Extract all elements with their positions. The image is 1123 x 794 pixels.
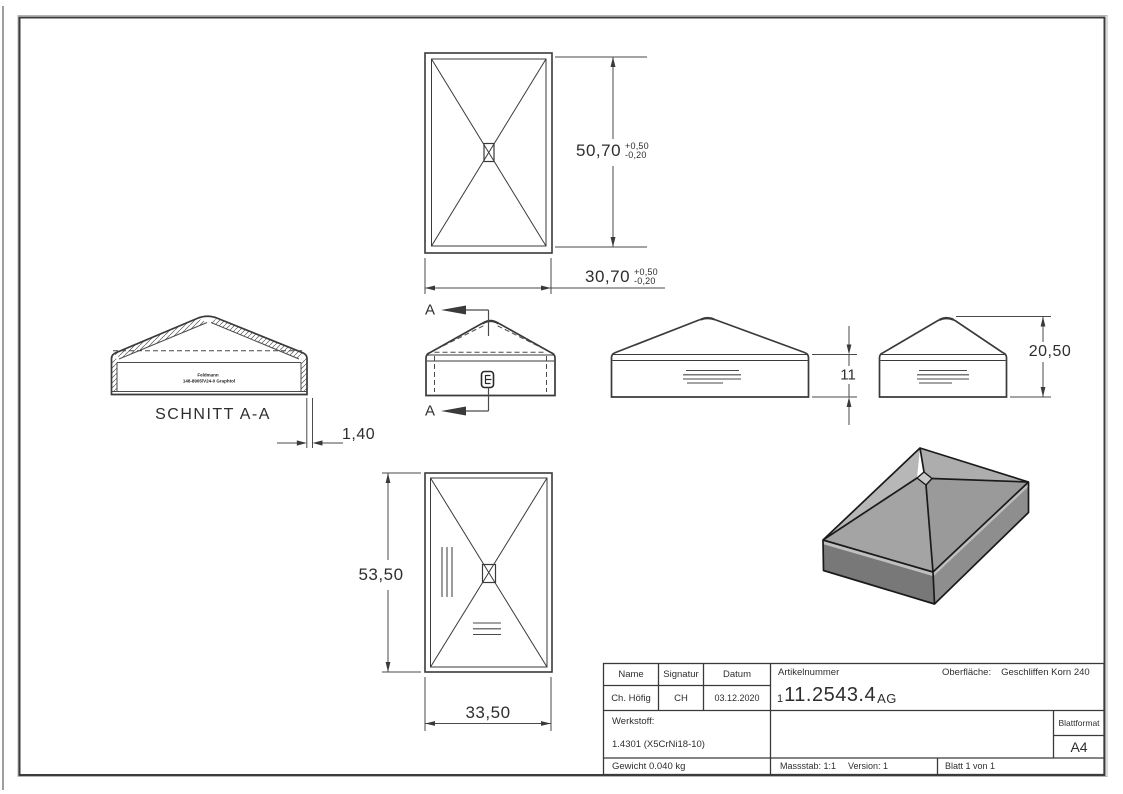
header-datum: Datum (704, 664, 770, 685)
side-view-long (612, 318, 809, 397)
artikelnummer-label: Artikelnummer (778, 667, 839, 678)
value-datum: 03.12.2020 (704, 686, 770, 710)
top-view-dimensions (425, 57, 665, 294)
front-view (426, 321, 555, 396)
section-label: SCHNITT A-A (155, 406, 271, 424)
blattformat-value: A4 (1054, 736, 1104, 757)
header-signatur: Signatur (659, 664, 703, 685)
tolerance-minus: -0,20 (625, 151, 649, 161)
cut-letter-top: A (425, 302, 435, 319)
stamp-text-line2: 148-8905/V24-0 Graphtol (183, 378, 235, 383)
bottom-view (425, 473, 552, 672)
gewicht-value: Gewicht 0.040 kg (612, 761, 685, 772)
dim-value: 30,70 (585, 267, 630, 287)
isometric-view (823, 448, 1029, 604)
tolerance-stack: +0,50 -0,20 (625, 142, 649, 161)
wall-thickness-dimension (277, 398, 343, 448)
dimension-top-height: 50,70 +0,50 -0,20 (574, 141, 651, 161)
blatt-value: Blatt 1 von 1 (945, 761, 995, 771)
dim-value: 50,70 (576, 141, 621, 161)
oberflaeche-value: Geschliffen Korn 240 (1001, 667, 1090, 678)
drawing-sheet: 50,70 +0,50 -0,20 30,70 +0,50 -0,20 SCHN… (0, 0, 1123, 794)
oberflaeche-label: Oberfläche: (942, 667, 991, 678)
tolerance-minus: -0,20 (634, 277, 658, 287)
dimension-wall-thickness: 1,40 (342, 426, 375, 444)
artikelnummer-suffix: AG (877, 693, 897, 705)
header-name: Name (604, 664, 658, 685)
artikelnummer-prefix: 1 (777, 694, 783, 705)
massstab-value: Massstab: 1:1 (780, 761, 836, 771)
value-name: Ch. Höfig (604, 686, 658, 710)
version-value: Version: 1 (848, 761, 888, 771)
dimension-top-width: 30,70 +0,50 -0,20 (583, 267, 660, 287)
dimension-band-height: 11 (837, 367, 859, 384)
value-signatur: CH (659, 686, 703, 710)
dimension-bottom-height: 53,50 (355, 565, 406, 585)
werkstoff-label: Werkstoff: (612, 716, 654, 727)
cut-letter-bottom: A (425, 403, 435, 420)
side-view-short (880, 318, 1007, 397)
werkstoff-value: 1.4301 (X5CrNi18-10) (612, 739, 705, 750)
top-view (425, 53, 552, 253)
artikelnummer-value: 1 11.2543.4 AG (777, 684, 897, 705)
oberflaeche-row: Oberfläche: Geschliffen Korn 240 (942, 667, 1090, 678)
dimension-bottom-width: 33,50 (465, 703, 510, 723)
dimension-total-height: 20,50 (1026, 343, 1075, 361)
artikelnummer-main: 11.2543.4 (784, 686, 876, 705)
manufacturer-stamp-icon (482, 372, 494, 388)
stamp-text-line1: Feldmann (197, 372, 218, 377)
blattformat-label: Blattformat (1054, 711, 1104, 734)
tolerance-stack: +0,50 -0,20 (634, 268, 658, 287)
